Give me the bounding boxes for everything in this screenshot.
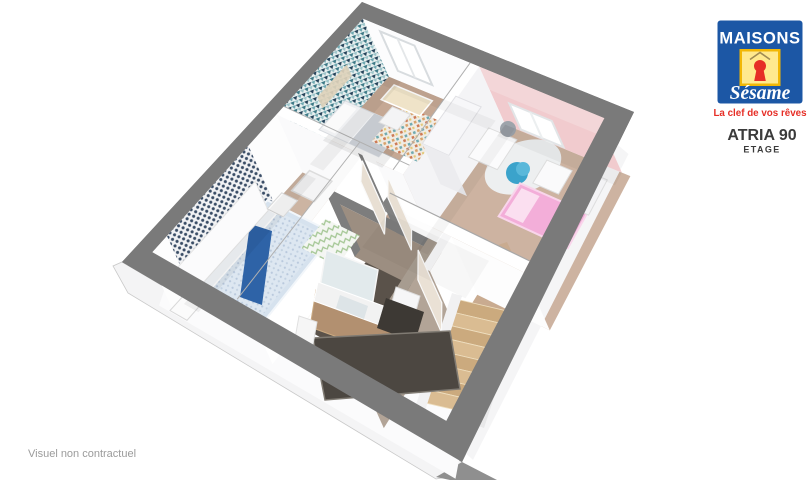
svg-text:Sésame: Sésame	[730, 83, 791, 104]
svg-text:La clef de vos rêves: La clef de vos rêves	[713, 108, 807, 119]
svg-text:ETAGE: ETAGE	[743, 145, 780, 155]
svg-text:MAISONS: MAISONS	[719, 30, 800, 48]
svg-text:ATRIA 90: ATRIA 90	[727, 127, 796, 144]
svg-text:Visuel non contractuel: Visuel non contractuel	[28, 448, 136, 460]
